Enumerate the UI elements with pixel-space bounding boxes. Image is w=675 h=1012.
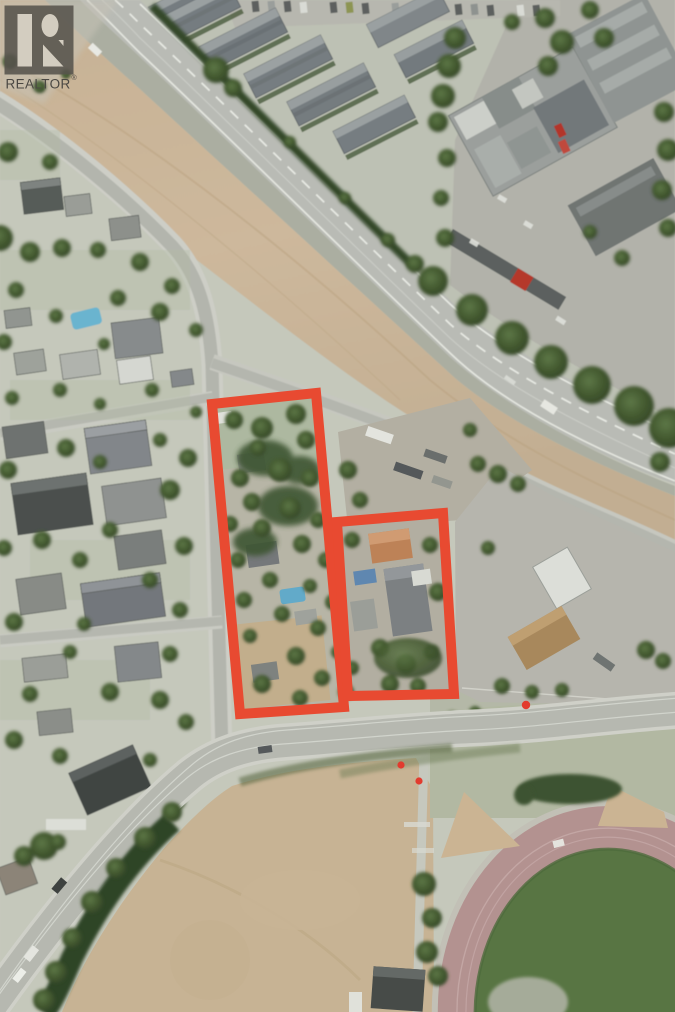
svg-text:®: ® <box>72 74 78 82</box>
svg-text:REALTOR: REALTOR <box>6 77 72 92</box>
